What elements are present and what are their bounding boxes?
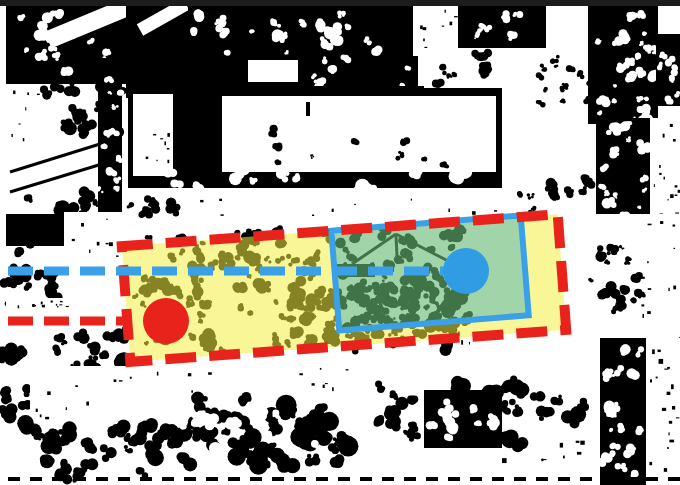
blue-circle-marker — [443, 248, 489, 294]
aerial-map-figure — [0, 0, 680, 485]
red-circle-marker — [143, 298, 189, 344]
annotation-overlay — [0, 0, 680, 485]
